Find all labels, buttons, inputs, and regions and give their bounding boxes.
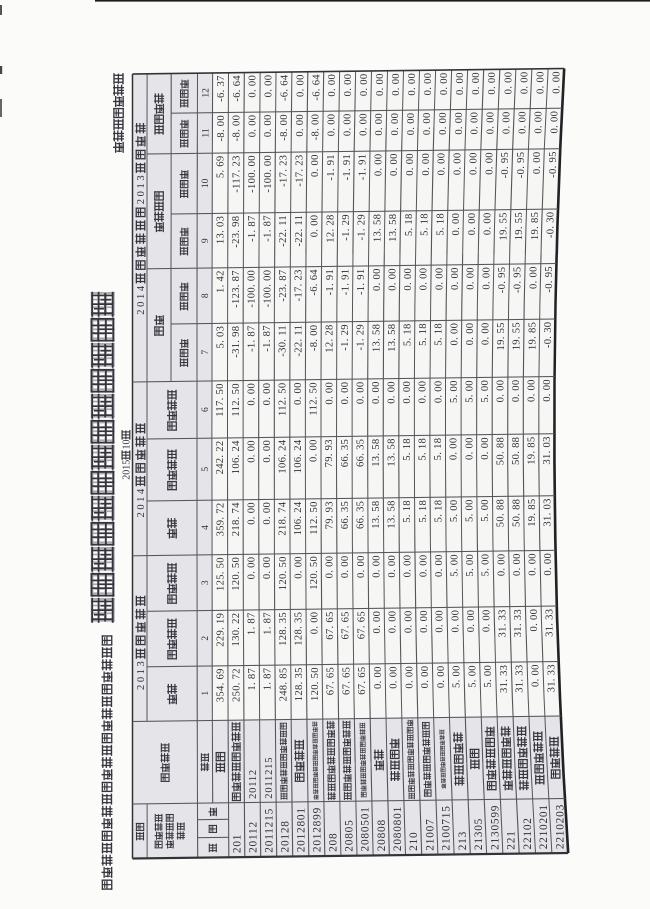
svg-text:0. 00: 0. 00 [310, 215, 321, 238]
svg-text:-6. 64: -6. 64 [232, 75, 243, 102]
svg-text:-100. 00: -100. 00 [247, 270, 258, 308]
svg-text:0. 00: 0. 00 [246, 440, 257, 463]
svg-text:5. 18: 5. 18 [402, 438, 413, 461]
svg-text:0. 00: 0. 00 [480, 437, 491, 460]
svg-text:0. 00: 0. 00 [374, 113, 385, 136]
svg-text:21007: 21007 [424, 818, 436, 850]
svg-text:-0. 95: -0. 95 [500, 152, 511, 179]
svg-text:0. 00: 0. 00 [387, 381, 398, 404]
svg-text:128. 35: 128. 35 [278, 612, 289, 646]
svg-text:0. 00: 0. 00 [264, 75, 275, 98]
svg-text:5. 00: 5. 00 [452, 665, 463, 688]
svg-text:-23. 98: -23. 98 [231, 216, 242, 248]
svg-text:13. 03: 13. 03 [216, 216, 227, 244]
svg-text:0. 00: 0. 00 [372, 611, 383, 634]
svg-text:-0. 95: -0. 95 [513, 267, 524, 294]
svg-text:13. 58: 13. 58 [387, 500, 398, 528]
svg-text:5. 18: 5. 18 [433, 438, 444, 461]
svg-text:210: 210 [408, 832, 420, 851]
svg-text:0. 00: 0. 00 [454, 112, 465, 135]
svg-text:0. 00: 0. 00 [390, 113, 401, 136]
svg-text:120. 50: 120. 50 [278, 556, 289, 590]
svg-text:0. 00: 0. 00 [262, 383, 273, 406]
svg-text:1. 87: 1. 87 [247, 668, 258, 691]
svg-text:-6. 64: -6. 64 [311, 74, 322, 101]
svg-text:5. 18: 5. 18 [435, 213, 446, 236]
svg-text:19. 55: 19. 55 [498, 212, 509, 240]
svg-text:0. 00: 0. 00 [471, 72, 482, 95]
svg-text:0. 00: 0. 00 [403, 555, 414, 578]
svg-text:0. 00: 0. 00 [248, 75, 259, 98]
svg-text:0. 00: 0. 00 [527, 379, 538, 402]
svg-text:0. 00: 0. 00 [496, 380, 507, 403]
svg-text:0. 00: 0. 00 [420, 666, 431, 689]
svg-text:2012801: 2012801 [295, 807, 307, 852]
svg-text:66. 35: 66. 35 [355, 439, 366, 467]
svg-text:13. 58: 13. 58 [372, 214, 383, 242]
svg-text:0. 00: 0. 00 [421, 153, 432, 176]
svg-text:5. 00: 5. 00 [465, 554, 476, 577]
svg-text:-17. 23: -17. 23 [295, 155, 306, 187]
svg-text:0. 00: 0. 00 [437, 153, 448, 176]
svg-text:1. 42: 1. 42 [215, 270, 226, 293]
svg-text:0. 00: 0. 00 [247, 557, 258, 580]
svg-text:248. 85: 248. 85 [278, 668, 289, 702]
svg-text:0. 00: 0. 00 [327, 74, 338, 97]
svg-text:0. 00: 0. 00 [502, 111, 513, 134]
svg-text:0. 00: 0. 00 [340, 382, 351, 405]
svg-text:0. 00: 0. 00 [387, 268, 398, 291]
svg-text:229. 19: 229. 19 [215, 613, 226, 647]
svg-text:2015: 2015 [122, 460, 133, 480]
svg-text:10: 10 [122, 440, 133, 450]
svg-text:11: 11 [201, 128, 211, 137]
svg-text:0. 00: 0. 00 [470, 112, 481, 135]
svg-text:-6. 37: -6. 37 [216, 75, 227, 102]
svg-text:0. 00: 0. 00 [434, 554, 445, 577]
svg-text:31. 33: 31. 33 [499, 665, 510, 693]
svg-text:5. 18: 5. 18 [434, 323, 445, 346]
svg-text:79. 93: 79. 93 [324, 501, 335, 529]
svg-text:13. 58: 13. 58 [387, 324, 398, 352]
svg-text:5. 00: 5. 00 [483, 665, 494, 688]
svg-text:0. 00: 0. 00 [439, 73, 450, 96]
svg-text:2: 2 [201, 636, 211, 641]
svg-text:9: 9 [201, 238, 211, 243]
svg-text:-23. 87: -23. 87 [278, 270, 289, 302]
svg-text:67. 65: 67. 65 [357, 667, 368, 695]
svg-text:5. 00: 5. 00 [467, 665, 478, 688]
svg-text:5. 69: 5. 69 [216, 156, 227, 179]
svg-text:2013: 2013 [136, 659, 147, 690]
svg-text:0. 00: 0. 00 [534, 111, 545, 134]
svg-text:-17. 23: -17. 23 [294, 269, 305, 301]
svg-text:0. 00: 0. 00 [419, 610, 430, 633]
svg-text:250. 72: 250. 72 [231, 668, 242, 702]
svg-text:120. 50: 120. 50 [309, 556, 320, 590]
svg-text:0. 00: 0. 00 [419, 268, 430, 291]
svg-text:0. 00: 0. 00 [388, 611, 399, 634]
svg-text:20112: 20112 [247, 821, 259, 853]
svg-text:20808: 20808 [376, 819, 388, 851]
svg-text:-0. 95: -0. 95 [497, 267, 508, 294]
svg-text:112. 50: 112. 50 [278, 383, 289, 417]
svg-text:213: 213 [457, 831, 469, 850]
svg-text:13. 58: 13. 58 [371, 439, 382, 467]
svg-text:0. 00: 0. 00 [531, 664, 542, 687]
svg-text:0. 00: 0. 00 [263, 114, 274, 137]
svg-text:0. 00: 0. 00 [373, 154, 384, 177]
svg-text:67. 65: 67. 65 [325, 611, 336, 639]
svg-text:0. 00: 0. 00 [325, 556, 336, 579]
svg-text:130. 22: 130. 22 [231, 613, 242, 647]
svg-text:3: 3 [201, 580, 211, 585]
svg-text:-6. 64: -6. 64 [309, 269, 320, 296]
svg-text:5. 00: 5. 00 [481, 554, 492, 577]
svg-text:50. 88: 50. 88 [511, 499, 522, 527]
svg-text:218. 74: 218. 74 [278, 501, 289, 535]
svg-text:13. 58: 13. 58 [371, 501, 382, 529]
svg-text:-1. 29: -1. 29 [357, 214, 368, 241]
svg-text:0. 00: 0. 00 [293, 556, 304, 579]
svg-text:0. 00: 0. 00 [389, 666, 400, 689]
svg-text:-0. 95: -0. 95 [516, 152, 527, 179]
svg-text:19. 85: 19. 85 [527, 437, 538, 465]
svg-text:2013: 2013 [136, 173, 147, 204]
svg-text:20112: 20112 [248, 769, 259, 799]
svg-text:-22. 11: -22. 11 [278, 215, 289, 247]
svg-text:0. 00: 0. 00 [372, 268, 383, 291]
svg-text:-22. 11: -22. 11 [294, 215, 305, 247]
svg-text:31. 33: 31. 33 [497, 609, 508, 637]
svg-text:2012899: 2012899 [311, 807, 323, 852]
svg-text:0. 00: 0. 00 [246, 383, 257, 406]
svg-text:0. 00: 0. 00 [542, 379, 553, 402]
svg-text:0. 00: 0. 00 [552, 71, 563, 94]
svg-text:-6. 64: -6. 64 [280, 74, 291, 101]
svg-text:50. 88: 50. 88 [495, 437, 506, 465]
svg-text:0. 00: 0. 00 [340, 556, 351, 579]
svg-text:0. 00: 0. 00 [359, 74, 370, 97]
svg-text:201: 201 [231, 834, 243, 853]
svg-text:0. 00: 0. 00 [455, 72, 466, 95]
svg-text:4: 4 [201, 525, 211, 530]
svg-text:112. 50: 112. 50 [309, 382, 320, 416]
svg-text:0. 00: 0. 00 [450, 610, 461, 633]
svg-text:0. 00: 0. 00 [453, 153, 464, 176]
svg-text:31. 33: 31. 33 [515, 665, 526, 693]
svg-text:-17. 23: -17. 23 [279, 155, 290, 187]
svg-text:12. 28: 12. 28 [325, 324, 336, 352]
svg-text:0. 00: 0. 00 [418, 555, 429, 578]
svg-text:0. 00: 0. 00 [309, 439, 320, 462]
svg-text:-100. 00: -100. 00 [262, 270, 273, 308]
svg-text:31. 33: 31. 33 [513, 609, 524, 637]
svg-text:0. 00: 0. 00 [496, 554, 507, 577]
svg-text:0. 00: 0. 00 [532, 152, 543, 175]
svg-text:0. 00: 0. 00 [324, 382, 335, 405]
svg-text:120. 50: 120. 50 [231, 557, 242, 591]
svg-text:0. 00: 0. 00 [310, 154, 321, 177]
svg-text:-1. 91: -1. 91 [326, 154, 337, 181]
svg-text:2100715: 2100715 [441, 805, 453, 850]
svg-text:2014: 2014 [136, 486, 147, 517]
svg-text:0. 00: 0. 00 [373, 666, 384, 689]
svg-text:19. 85: 19. 85 [527, 322, 538, 350]
svg-text:22102: 22102 [522, 817, 534, 849]
svg-text:117. 50: 117. 50 [215, 383, 226, 417]
svg-text:0. 00: 0. 00 [466, 267, 477, 290]
svg-text:31. 33: 31. 33 [545, 609, 556, 637]
svg-text:20128: 20128 [279, 820, 291, 852]
svg-text:-8. 00: -8. 00 [216, 115, 227, 142]
svg-text:0. 00: 0. 00 [389, 153, 400, 176]
svg-text:1. 87: 1. 87 [263, 668, 274, 691]
svg-text:0. 00: 0. 00 [468, 152, 479, 175]
svg-text:-100. 00: -100. 00 [247, 155, 258, 193]
svg-text:19. 85: 19. 85 [527, 499, 538, 527]
svg-text:12: 12 [201, 88, 211, 98]
svg-text:0. 00: 0. 00 [512, 553, 523, 576]
svg-text:0. 00: 0. 00 [466, 610, 477, 633]
svg-text:0. 00: 0. 00 [503, 72, 514, 95]
svg-text:50. 88: 50. 88 [511, 437, 522, 465]
svg-text:-1. 29: -1. 29 [340, 324, 351, 351]
svg-text:-1. 87: -1. 87 [247, 325, 258, 352]
svg-text:0. 00: 0. 00 [402, 381, 413, 404]
svg-text:112. 50: 112. 50 [309, 501, 320, 535]
svg-text:31. 03: 31. 03 [542, 498, 553, 526]
svg-text:106. 24: 106. 24 [293, 439, 304, 473]
svg-text:221: 221 [506, 830, 518, 849]
svg-text:0. 00: 0. 00 [295, 114, 306, 137]
svg-text:2080501: 2080501 [360, 806, 372, 851]
svg-text:106. 24: 106. 24 [278, 439, 289, 473]
svg-text:-1. 87: -1. 87 [263, 215, 274, 242]
svg-text:12. 28: 12. 28 [325, 214, 336, 242]
svg-text:0. 00: 0. 00 [262, 440, 273, 463]
svg-text:0. 00: 0. 00 [450, 267, 461, 290]
svg-text:13. 58: 13. 58 [371, 324, 382, 352]
svg-text:66. 35: 66. 35 [340, 501, 351, 529]
svg-text:10: 10 [201, 178, 211, 188]
svg-text:0. 00: 0. 00 [404, 666, 415, 689]
svg-text:5. 00: 5. 00 [450, 554, 461, 577]
svg-text:1: 1 [201, 691, 211, 696]
svg-text:0. 00: 0. 00 [529, 609, 540, 632]
svg-text:0. 00: 0. 00 [486, 112, 497, 135]
svg-text:67. 65: 67. 65 [341, 667, 352, 695]
svg-text:208: 208 [328, 833, 340, 852]
svg-text:19. 55: 19. 55 [496, 322, 507, 350]
svg-text:5. 18: 5. 18 [403, 323, 414, 346]
svg-text:5. 18: 5. 18 [418, 500, 429, 523]
svg-text:0. 00: 0. 00 [248, 115, 259, 138]
svg-text:-1. 87: -1. 87 [262, 325, 273, 352]
svg-text:0. 00: 0. 00 [482, 609, 493, 632]
svg-text:0. 00: 0. 00 [423, 73, 434, 96]
svg-text:0. 00: 0. 00 [387, 555, 398, 578]
svg-text:21305: 21305 [473, 818, 485, 850]
svg-text:0. 00: 0. 00 [434, 268, 445, 291]
svg-text:2014: 2014 [136, 283, 147, 314]
svg-text:0. 00: 0. 00 [438, 112, 449, 135]
svg-text:-1. 29: -1. 29 [341, 214, 352, 241]
svg-text:0. 00: 0. 00 [483, 212, 494, 235]
svg-text:79. 93: 79. 93 [324, 439, 335, 467]
svg-text:-22. 11: -22. 11 [293, 325, 304, 357]
svg-text:31. 33: 31. 33 [546, 664, 557, 692]
svg-text:-100. 00: -100. 00 [263, 155, 274, 193]
svg-text:0. 00: 0. 00 [309, 612, 320, 635]
svg-text:112. 50: 112. 50 [231, 383, 242, 417]
svg-text:0. 00: 0. 00 [543, 553, 554, 576]
svg-text:-8. 00: -8. 00 [309, 325, 320, 352]
svg-text:0. 00: 0. 00 [464, 437, 475, 460]
svg-text:0. 00: 0. 00 [246, 502, 257, 525]
svg-text:0. 00: 0. 00 [406, 113, 417, 136]
svg-text:50. 88: 50. 88 [496, 499, 507, 527]
svg-text:-123. 87: -123. 87 [231, 270, 242, 308]
svg-text:-0. 30: -0. 30 [546, 212, 557, 239]
svg-text:0. 00: 0. 00 [518, 111, 529, 134]
svg-text:66. 35: 66. 35 [340, 439, 351, 467]
svg-text:0. 00: 0. 00 [536, 71, 547, 94]
svg-text:5. 18: 5. 18 [420, 213, 431, 236]
svg-text:0. 00: 0. 00 [449, 438, 460, 461]
svg-text:-8. 00: -8. 00 [232, 115, 243, 142]
svg-text:0. 00: 0. 00 [403, 610, 414, 633]
svg-text:5. 00: 5. 00 [449, 380, 460, 403]
svg-text:354. 69: 354. 69 [216, 668, 227, 702]
svg-text:0. 00: 0. 00 [487, 72, 498, 95]
svg-text:-1. 91: -1. 91 [356, 269, 367, 296]
svg-text:-0. 30: -0. 30 [543, 322, 554, 349]
svg-text:7: 7 [201, 350, 211, 355]
svg-text:0. 00: 0. 00 [484, 152, 495, 175]
svg-text:5. 00: 5. 00 [464, 380, 475, 403]
svg-text:0. 00: 0. 00 [481, 267, 492, 290]
svg-text:5: 5 [201, 467, 211, 472]
svg-text:8: 8 [201, 293, 211, 298]
svg-text:2130599: 2130599 [489, 805, 501, 850]
svg-text:5. 18: 5. 18 [433, 500, 444, 523]
svg-text:0. 00: 0. 00 [371, 381, 382, 404]
svg-text:19. 85: 19. 85 [530, 212, 541, 240]
svg-text:0. 00: 0. 00 [262, 502, 273, 525]
svg-text:2210203: 2210203 [555, 804, 567, 849]
svg-text:0. 00: 0. 00 [356, 555, 367, 578]
svg-text:0. 00: 0. 00 [436, 666, 447, 689]
svg-text:0. 00: 0. 00 [435, 610, 446, 633]
svg-text:-117. 23: -117. 23 [232, 155, 243, 192]
svg-text:242. 22: 242. 22 [215, 441, 226, 475]
svg-text:0. 00: 0. 00 [481, 322, 492, 345]
svg-text:218. 74: 218. 74 [231, 502, 242, 536]
svg-text:20805: 20805 [344, 819, 356, 851]
svg-text:5. 03: 5. 03 [215, 326, 226, 349]
svg-text:-31. 98: -31. 98 [231, 326, 242, 358]
svg-text:0. 00: 0. 00 [528, 266, 539, 289]
svg-text:2080801: 2080801 [392, 806, 404, 851]
svg-text:0. 00: 0. 00 [358, 113, 369, 136]
svg-text:-1. 91: -1. 91 [341, 269, 352, 296]
svg-text:67. 65: 67. 65 [356, 611, 367, 639]
svg-text:5. 00: 5. 00 [465, 499, 476, 522]
svg-text:5. 18: 5. 18 [418, 438, 429, 461]
svg-text:2011215: 2011215 [264, 757, 275, 799]
svg-text:31. 03: 31. 03 [542, 436, 553, 464]
svg-text:0. 00: 0. 00 [418, 381, 429, 404]
svg-text:5. 00: 5. 00 [449, 500, 460, 523]
svg-text:-8. 00: -8. 00 [311, 114, 322, 141]
svg-text:359. 72: 359. 72 [215, 503, 226, 537]
svg-text:0. 00: 0. 00 [403, 268, 414, 291]
svg-text:-1. 91: -1. 91 [342, 154, 353, 181]
svg-text:66. 35: 66. 35 [356, 501, 367, 529]
svg-text:0. 00: 0. 00 [405, 153, 416, 176]
svg-text:125. 50: 125. 50 [215, 557, 226, 591]
svg-text:5. 00: 5. 00 [480, 380, 491, 403]
svg-text:-0. 95: -0. 95 [548, 151, 559, 178]
svg-text:-30. 11: -30. 11 [278, 325, 289, 357]
svg-text:0. 00: 0. 00 [375, 73, 386, 96]
svg-text:0. 00: 0. 00 [327, 114, 338, 137]
svg-text:0. 00: 0. 00 [528, 553, 539, 576]
svg-text:-1. 91: -1. 91 [358, 154, 369, 181]
svg-text:0. 00: 0. 00 [449, 323, 460, 346]
svg-text:106. 24: 106. 24 [293, 501, 304, 535]
svg-text:0. 00: 0. 00 [355, 382, 366, 405]
svg-text:0. 00: 0. 00 [343, 74, 354, 97]
svg-text:67. 65: 67. 65 [326, 667, 337, 695]
svg-text:0. 00: 0. 00 [371, 555, 382, 578]
svg-text:0. 00: 0. 00 [451, 213, 462, 236]
svg-text:-1. 87: -1. 87 [247, 215, 258, 242]
svg-text:-8. 00: -8. 00 [279, 114, 290, 141]
svg-text:0. 00: 0. 00 [433, 381, 444, 404]
svg-text:2011215: 2011215 [263, 808, 275, 853]
svg-text:-1. 91: -1. 91 [325, 269, 336, 296]
svg-text:0. 00: 0. 00 [519, 72, 530, 95]
svg-text:0. 00: 0. 00 [262, 557, 273, 580]
svg-text:6: 6 [201, 407, 211, 412]
svg-text:0. 00: 0. 00 [407, 73, 418, 96]
svg-text:106. 24: 106. 24 [231, 440, 242, 474]
svg-text:120. 50: 120. 50 [310, 667, 321, 701]
svg-text:5. 00: 5. 00 [480, 499, 491, 522]
svg-text:13. 58: 13. 58 [387, 438, 398, 466]
svg-text:0. 00: 0. 00 [391, 73, 402, 96]
svg-text:0. 00: 0. 00 [550, 111, 561, 134]
svg-text:128. 35: 128. 35 [294, 667, 305, 701]
svg-text:0. 00: 0. 00 [467, 213, 478, 236]
svg-text:0. 00: 0. 00 [511, 380, 522, 403]
svg-text:-1. 29: -1. 29 [356, 324, 367, 351]
svg-text:128. 35: 128. 35 [294, 612, 305, 646]
svg-text:-0. 95: -0. 95 [544, 266, 555, 293]
svg-text:0. 00: 0. 00 [465, 323, 476, 346]
svg-text:0. 00: 0. 00 [342, 113, 353, 136]
svg-text:1. 87: 1. 87 [262, 612, 273, 635]
svg-text:1. 87: 1. 87 [247, 612, 258, 635]
svg-text:5. 18: 5. 18 [402, 500, 413, 523]
svg-text:5. 18: 5. 18 [418, 323, 429, 346]
svg-text:5. 18: 5. 18 [404, 213, 415, 236]
svg-text:67. 65: 67. 65 [341, 611, 352, 639]
svg-text:0. 00: 0. 00 [293, 382, 304, 405]
svg-text:19. 55: 19. 55 [512, 322, 523, 350]
